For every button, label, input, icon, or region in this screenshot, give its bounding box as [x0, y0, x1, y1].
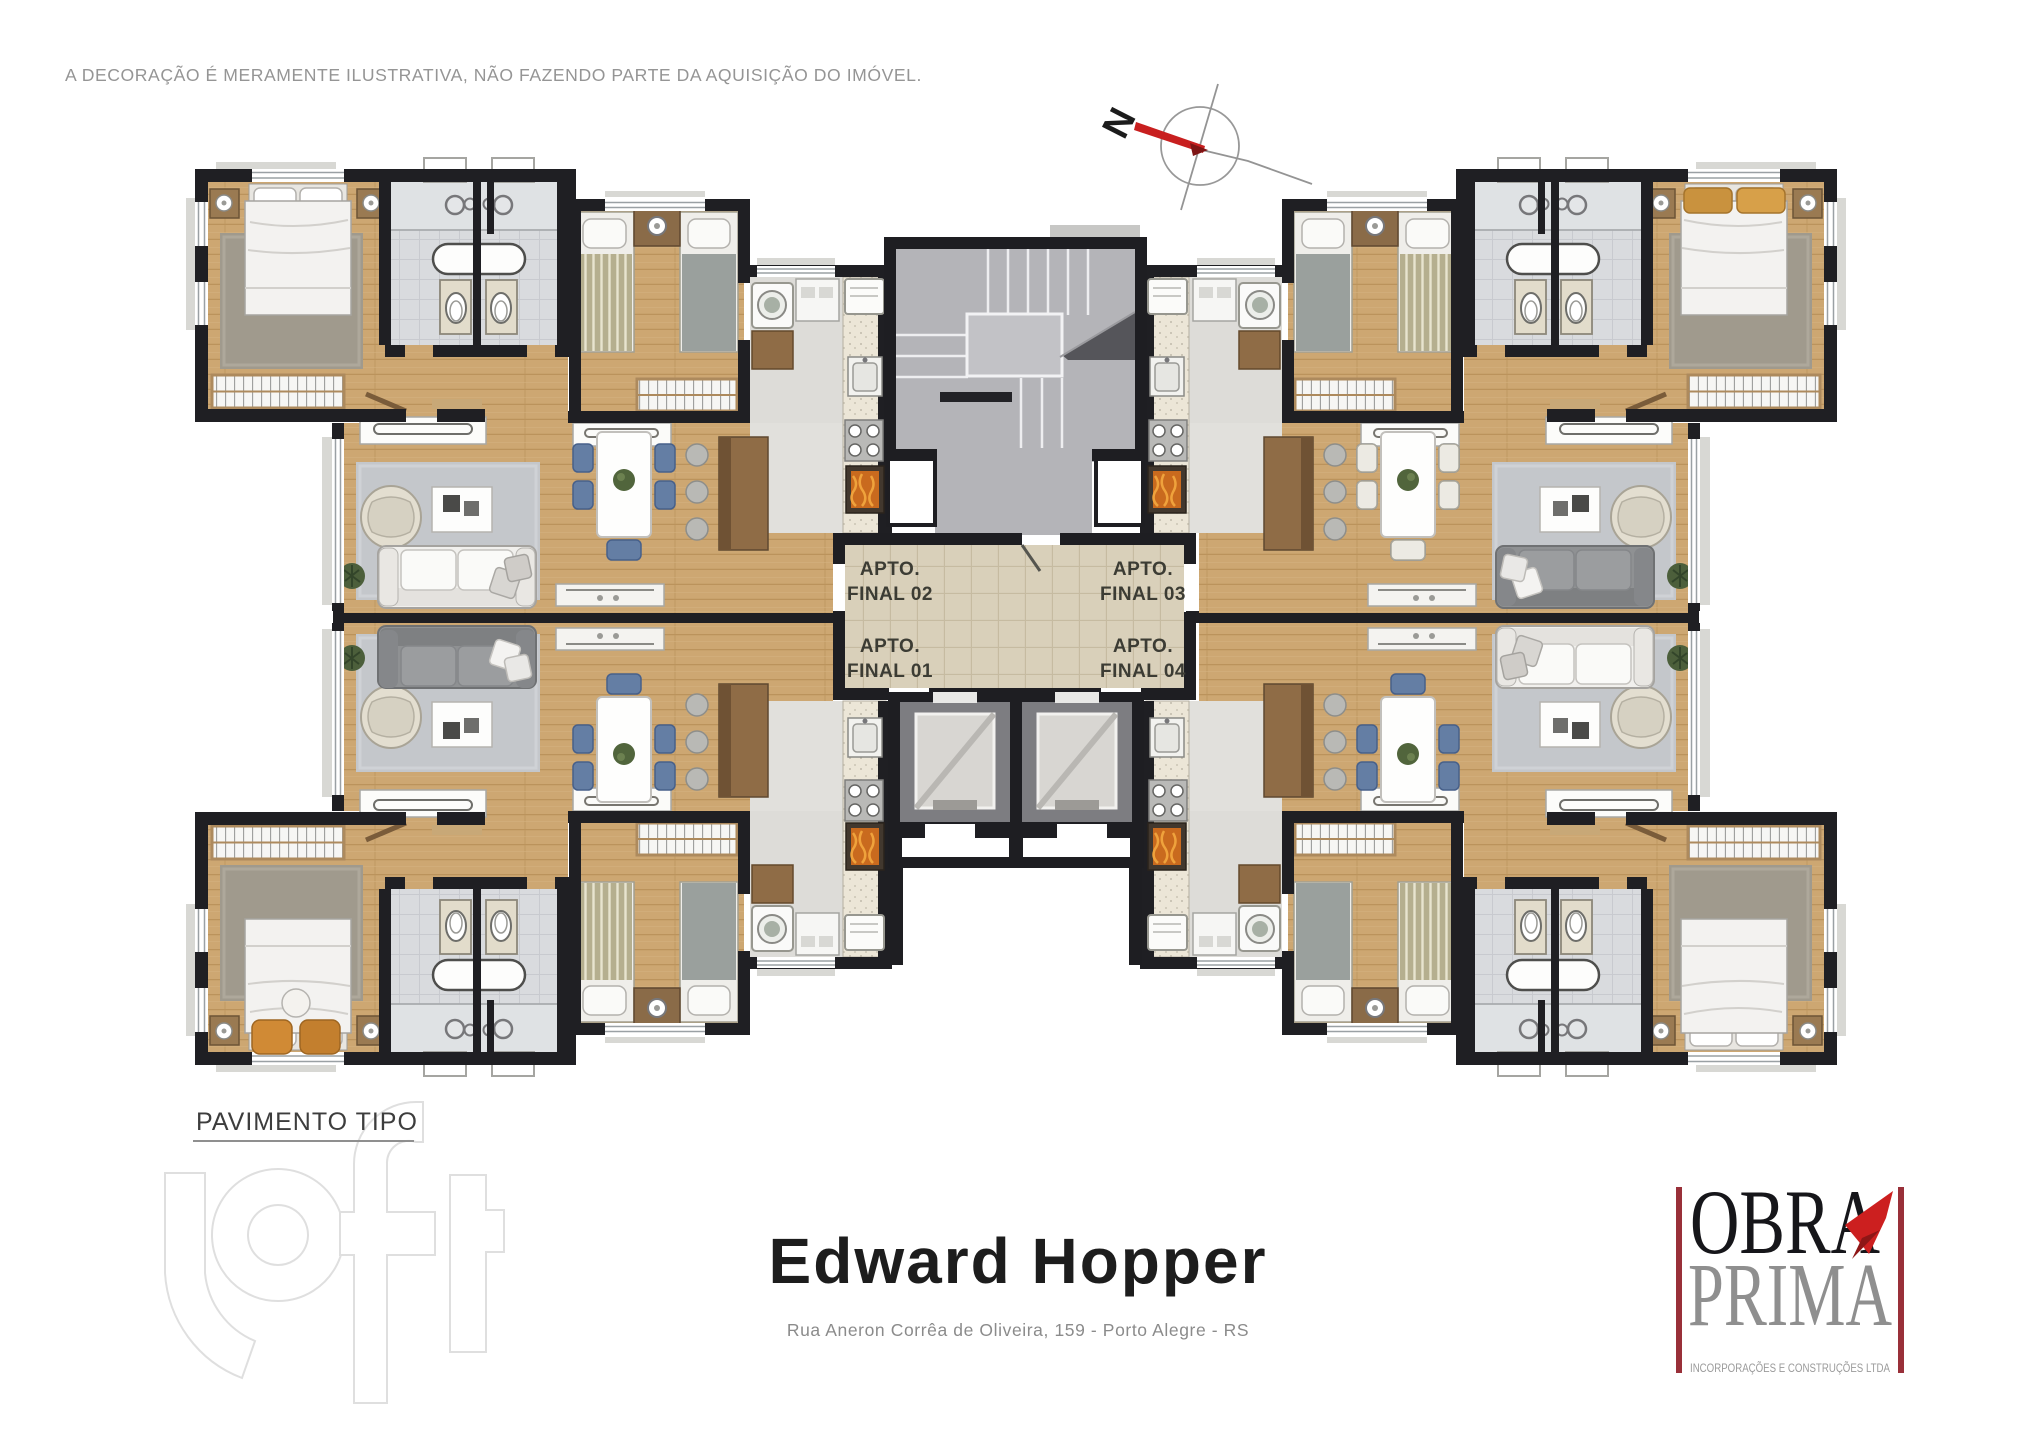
- svg-text:FINAL 01: FINAL 01: [847, 661, 933, 682]
- svg-text:APTO.: APTO.: [1113, 636, 1173, 657]
- svg-text:PAVIMENTO TIPO: PAVIMENTO TIPO: [196, 1108, 418, 1136]
- svg-text:APTO.: APTO.: [860, 636, 920, 657]
- svg-text:PRIMA: PRIMA: [1688, 1246, 1892, 1345]
- svg-text:FINAL 02: FINAL 02: [847, 584, 933, 605]
- svg-text:FINAL 04: FINAL 04: [1100, 661, 1186, 682]
- svg-text:Rua Aneron Corrêa de Oliveira,: Rua Aneron Corrêa de Oliveira, 159 - Por…: [787, 1320, 1249, 1340]
- svg-text:Edward Hopper: Edward Hopper: [769, 1225, 1268, 1297]
- svg-text:APTO.: APTO.: [1113, 559, 1173, 580]
- svg-text:INCORPORAÇÕES E CONSTRUÇÕES LT: INCORPORAÇÕES E CONSTRUÇÕES LTDA: [1690, 1362, 1890, 1375]
- svg-text:APTO.: APTO.: [860, 559, 920, 580]
- svg-text:A DECORAÇÃO É MERAMENTE ILUSTR: A DECORAÇÃO É MERAMENTE ILUSTRATIVA, NÃO…: [65, 64, 922, 85]
- svg-text:FINAL 03: FINAL 03: [1100, 584, 1186, 605]
